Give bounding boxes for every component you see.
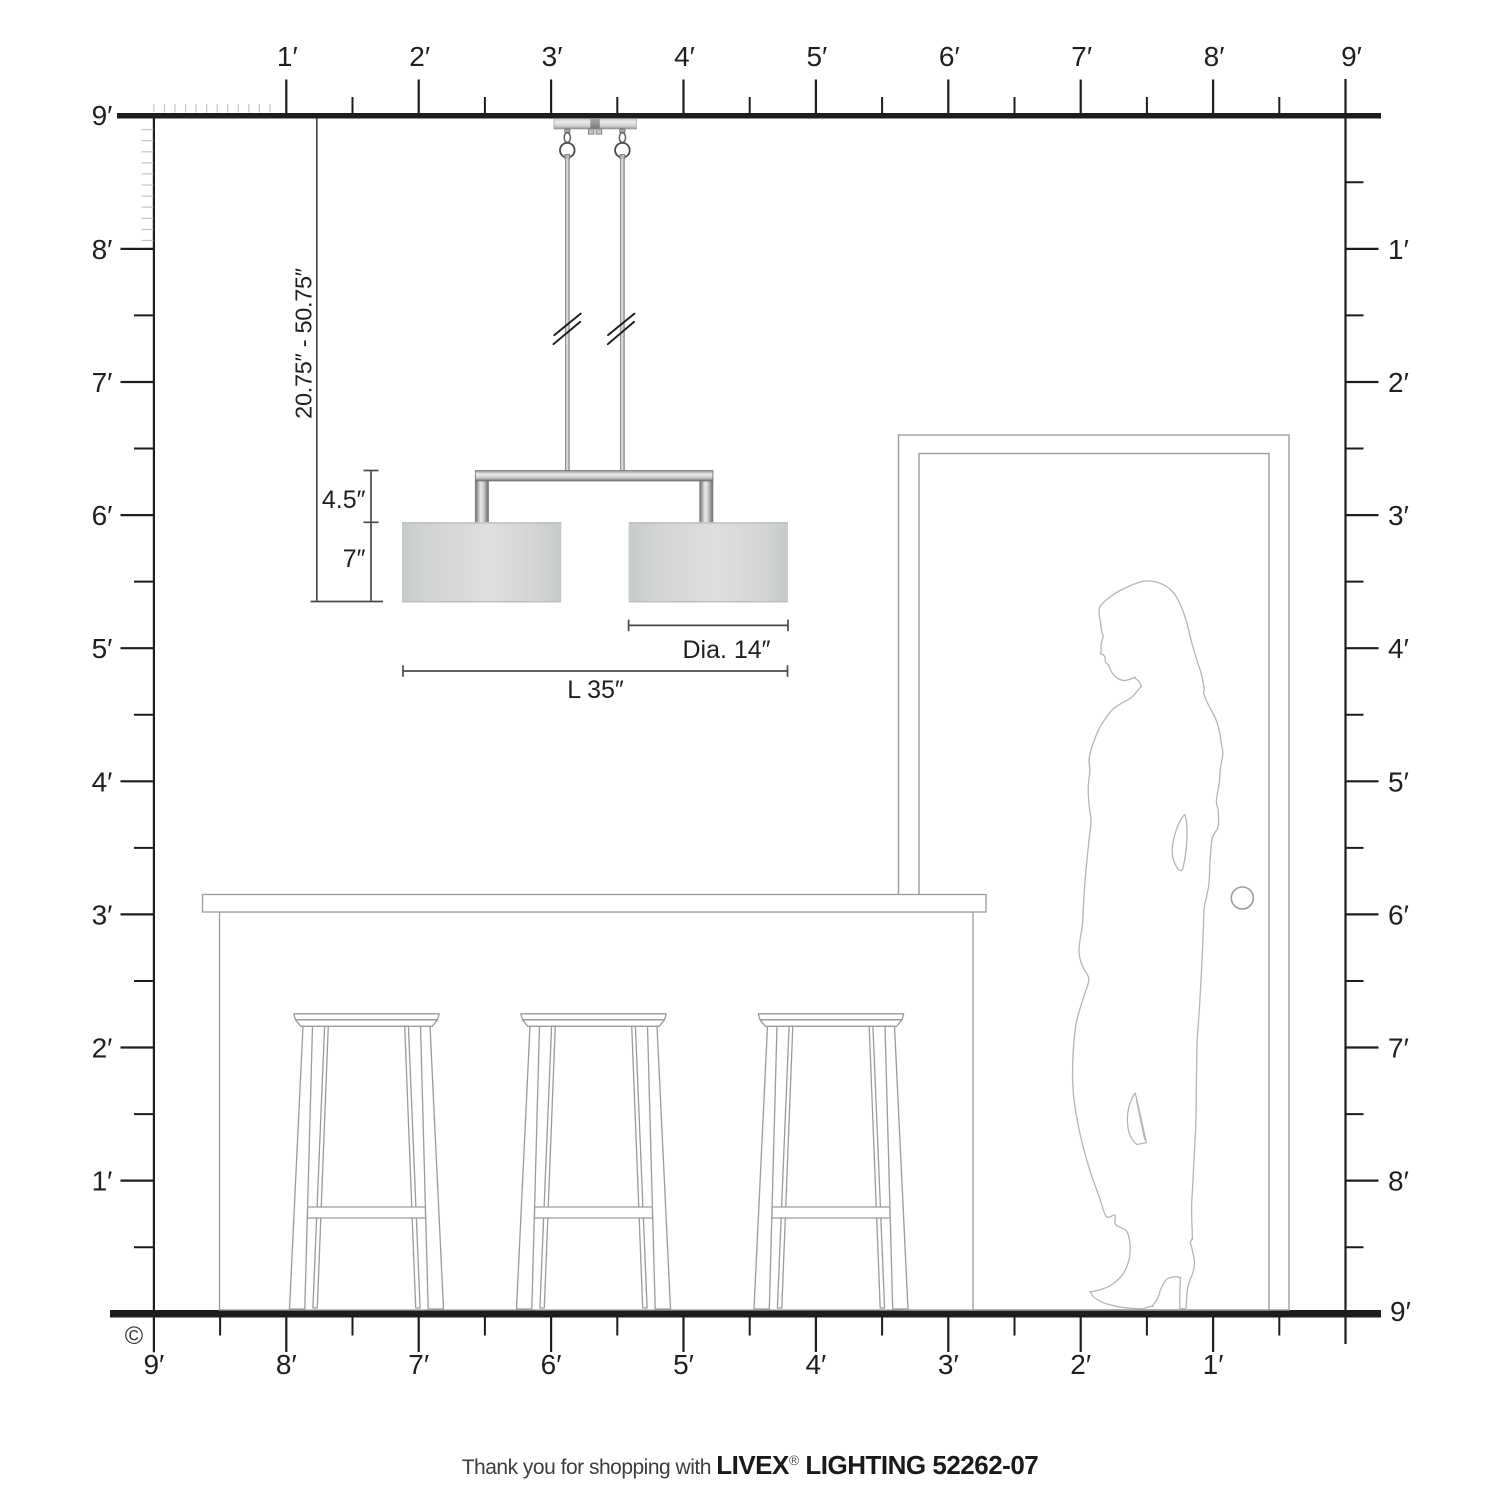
svg-text:7″: 7″ <box>343 545 366 573</box>
svg-text:7′: 7′ <box>408 1349 429 1380</box>
svg-text:2′: 2′ <box>1388 367 1409 398</box>
svg-text:4′: 4′ <box>674 41 695 72</box>
svg-text:9′: 9′ <box>143 1349 164 1380</box>
svg-text:1′: 1′ <box>1203 1349 1224 1380</box>
svg-text:6′: 6′ <box>92 500 113 531</box>
svg-text:8′: 8′ <box>1388 1166 1409 1197</box>
svg-text:6′: 6′ <box>1388 899 1409 930</box>
svg-text:5′: 5′ <box>92 633 113 664</box>
svg-text:20.75″ - 50.75″: 20.75″ - 50.75″ <box>291 268 317 419</box>
svg-text:L 35″: L 35″ <box>567 676 624 704</box>
svg-text:8′: 8′ <box>1204 41 1225 72</box>
svg-text:1′: 1′ <box>1388 234 1409 265</box>
svg-text:3′: 3′ <box>92 899 113 930</box>
svg-text:4′: 4′ <box>1388 633 1409 664</box>
svg-text:3′: 3′ <box>542 41 563 72</box>
svg-text:9′: 9′ <box>92 100 113 131</box>
svg-text:8′: 8′ <box>276 1349 297 1380</box>
svg-text:3′: 3′ <box>1388 500 1409 531</box>
svg-text:6′: 6′ <box>939 41 960 72</box>
svg-text:4′: 4′ <box>92 766 113 797</box>
svg-text:2′: 2′ <box>409 41 430 72</box>
svg-text:8′: 8′ <box>92 234 113 265</box>
svg-text:2′: 2′ <box>92 1033 113 1064</box>
svg-text:2′: 2′ <box>1070 1349 1091 1380</box>
svg-text:7′: 7′ <box>92 367 113 398</box>
svg-text:7′: 7′ <box>1388 1033 1409 1064</box>
svg-text:5′: 5′ <box>1388 766 1409 797</box>
svg-text:4′: 4′ <box>805 1349 826 1380</box>
svg-text:3′: 3′ <box>938 1349 959 1380</box>
svg-text:5′: 5′ <box>673 1349 694 1380</box>
svg-text:©: © <box>125 1322 144 1350</box>
svg-text:1′: 1′ <box>92 1166 113 1197</box>
svg-text:Dia. 14″: Dia. 14″ <box>682 636 770 664</box>
svg-text:7′: 7′ <box>1071 41 1092 72</box>
svg-text:1′: 1′ <box>277 41 298 72</box>
svg-text:9′: 9′ <box>1390 1296 1411 1327</box>
svg-text:4.5″: 4.5″ <box>322 486 366 514</box>
svg-text:6′: 6′ <box>541 1349 562 1380</box>
svg-text:9′: 9′ <box>1341 41 1362 72</box>
svg-text:5′: 5′ <box>806 41 827 72</box>
